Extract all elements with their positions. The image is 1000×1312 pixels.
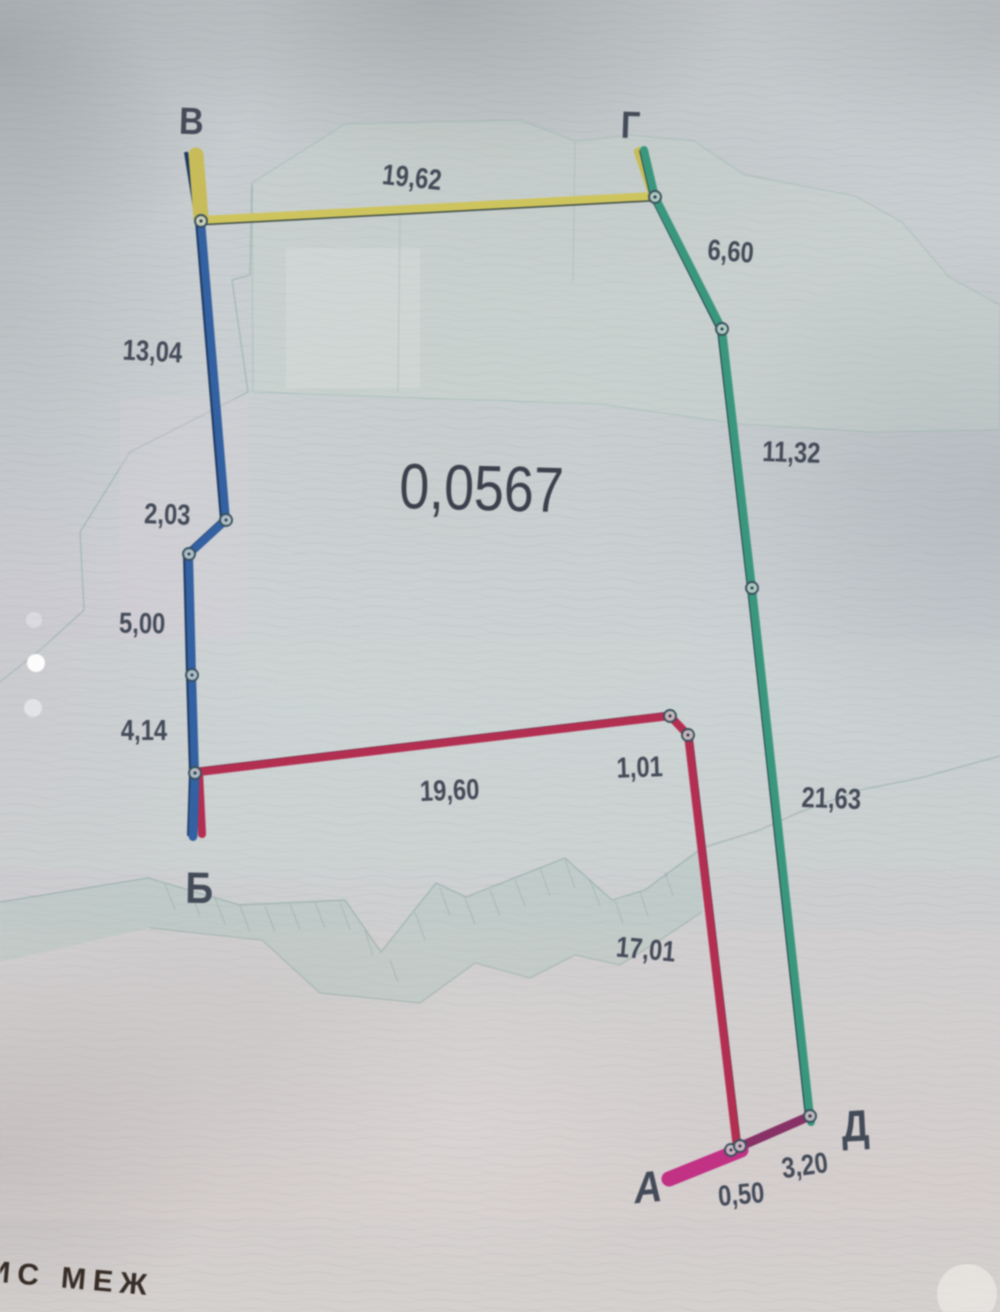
svg-text:19,62: 19,62: [381, 158, 444, 197]
svg-text:4,14: 4,14: [121, 714, 167, 747]
svg-text:Д: Д: [840, 1100, 870, 1151]
svg-text:Г: Г: [620, 103, 641, 147]
svg-text:13,04: 13,04: [122, 333, 183, 369]
svg-text:В: В: [178, 99, 204, 143]
svg-text:19,60: 19,60: [419, 773, 480, 808]
svg-text:21,63: 21,63: [801, 781, 862, 816]
svg-text:5,00: 5,00: [119, 606, 166, 640]
svg-text:Б: Б: [185, 862, 214, 912]
svg-text:11,32: 11,32: [762, 435, 821, 470]
svg-text:2,03: 2,03: [144, 497, 191, 531]
svg-text:1,01: 1,01: [616, 750, 663, 784]
svg-text:17,01: 17,01: [615, 930, 677, 968]
svg-text:0,50: 0,50: [717, 1176, 766, 1213]
svg-text:6,60: 6,60: [706, 233, 754, 269]
svg-text:А: А: [631, 1161, 664, 1213]
svg-text:3,20: 3,20: [779, 1146, 829, 1185]
svg-text:0,0567: 0,0567: [398, 449, 564, 526]
